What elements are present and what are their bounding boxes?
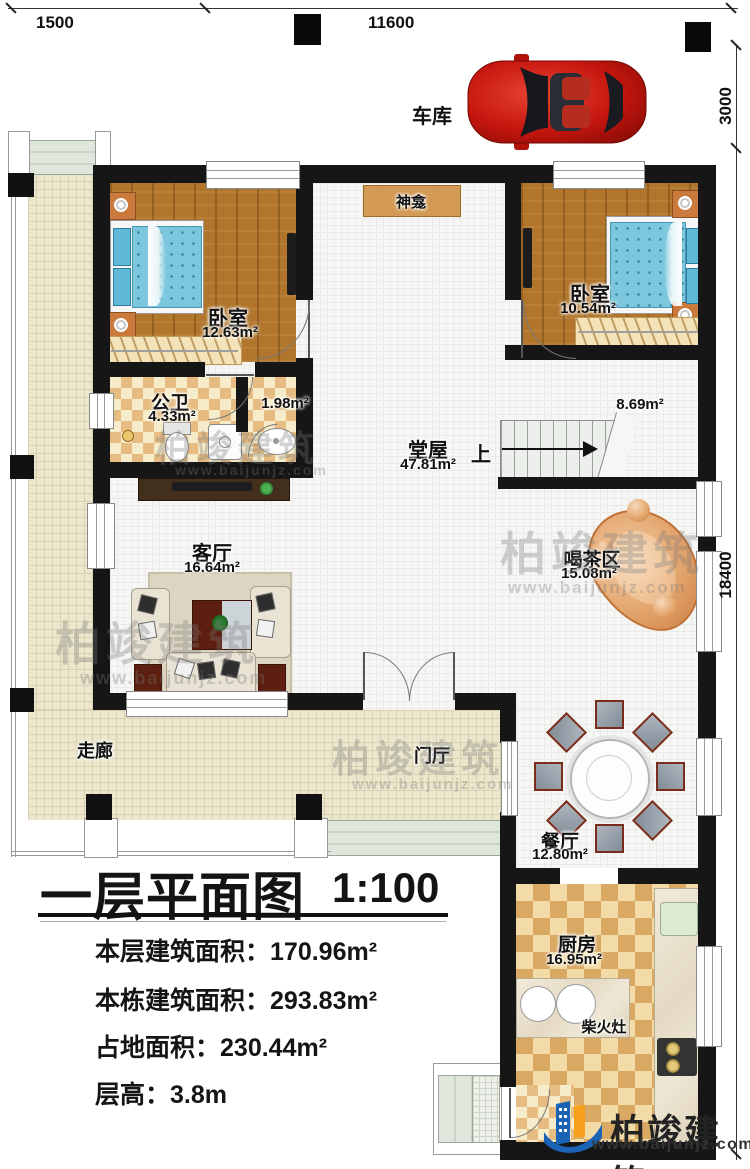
dining-chair <box>656 762 685 791</box>
stat-building-area: 本栋建筑面积：293.83m² <box>95 981 377 1017</box>
stat-floor-area: 本层建筑面积：170.96m² <box>95 932 377 968</box>
kitchen-sink-icon <box>660 902 698 936</box>
column-pedestal <box>294 818 328 858</box>
window <box>87 503 115 569</box>
wall <box>500 693 516 743</box>
floor-plan-canvas: 1500 11600 3000 18400 车库 <box>0 0 750 1169</box>
tv-bedroom-left <box>287 233 296 295</box>
wall <box>93 362 205 377</box>
dim-18400: 18400 <box>716 551 736 598</box>
bed-left-pillow <box>113 268 131 306</box>
railing-west <box>15 140 16 857</box>
dining-table-inner <box>586 755 632 801</box>
stat-label: 层高： <box>95 1081 170 1109</box>
shower-drain-icon <box>219 436 231 448</box>
toilet-icon <box>165 432 189 462</box>
bed-right-sheet <box>664 222 682 306</box>
window <box>696 738 722 816</box>
bedroom-left-area: 12.63m² <box>202 324 258 341</box>
brand-website: www.baijunjz.com <box>592 1136 750 1154</box>
wall <box>285 693 363 710</box>
railing-post <box>8 131 30 177</box>
entry-steps-south <box>320 820 514 856</box>
title-underline-thin <box>40 921 446 922</box>
plan-scale: 1:100 <box>332 864 439 912</box>
dim-3000: 3000 <box>716 87 736 125</box>
window <box>206 161 300 189</box>
column <box>8 173 34 197</box>
kitchen-area: 16.95m² <box>546 951 602 968</box>
door-leaf <box>206 374 254 376</box>
sofa-cushion <box>255 592 275 612</box>
tea-stool <box>653 595 677 619</box>
tv-living <box>172 482 252 491</box>
dim-1500: 1500 <box>36 13 74 33</box>
sofa-cushion <box>220 658 240 678</box>
stat-label: 本层建筑面积： <box>95 938 270 966</box>
dining-area: 12.80m² <box>532 846 588 863</box>
dim-marker <box>685 22 711 52</box>
tea-area-value: 15.08m² <box>561 565 617 582</box>
nightstand <box>672 190 700 218</box>
hall-area: 47.81m² <box>400 456 456 473</box>
foyer-label: 门厅 <box>414 742 450 768</box>
wall <box>643 165 716 183</box>
entry-steps-northwest <box>28 140 97 175</box>
cabinet-plant-icon <box>260 482 273 495</box>
stat-floor-height: 层高：3.8m <box>95 1075 227 1111</box>
wall <box>498 477 716 489</box>
side-table <box>134 664 162 692</box>
wall <box>93 462 313 478</box>
column <box>10 688 34 712</box>
window <box>501 741 518 816</box>
wall <box>505 345 716 360</box>
stat-label: 占地面积： <box>95 1034 220 1062</box>
bathroom-area: 4.33m² <box>148 408 196 425</box>
railing-west <box>11 140 12 857</box>
dim-line-top <box>8 8 738 9</box>
wood-stove-label: 柴火灶 <box>581 1016 626 1037</box>
stat-value: 170.96m² <box>270 938 377 966</box>
nightstand <box>108 192 136 220</box>
stat-value: 230.44m² <box>220 1034 327 1062</box>
tea-stool <box>627 499 650 522</box>
bed-left-pillow <box>113 228 131 266</box>
wall <box>93 165 206 183</box>
floor-drain-icon <box>122 430 134 442</box>
wall <box>505 183 521 300</box>
column <box>86 794 112 820</box>
corridor-label: 走廊 <box>77 737 113 763</box>
plan-title: 一层平面图 <box>40 855 305 930</box>
stat-value: 3.8m <box>170 1081 227 1109</box>
dim-11600: 11600 <box>368 13 414 33</box>
sofa-cushion <box>256 619 275 638</box>
railing-south <box>11 851 331 852</box>
column <box>296 794 322 820</box>
column <box>10 455 34 479</box>
wall <box>698 183 716 483</box>
side-table <box>258 664 286 692</box>
gas-burner-icon <box>666 1059 680 1073</box>
coffee-table-plant-icon <box>212 615 228 631</box>
wall <box>296 183 313 300</box>
wood-stove-burner-icon <box>520 986 556 1022</box>
window <box>696 946 722 1047</box>
wall <box>618 868 716 884</box>
bedroom-right-area: 10.54m² <box>560 300 616 317</box>
shrine-label: 神龛 <box>396 191 426 212</box>
wall <box>500 868 560 884</box>
bed-left-mattress <box>132 226 202 308</box>
gas-burner-icon <box>666 1042 680 1056</box>
window <box>89 393 114 429</box>
column-pedestal <box>84 818 118 858</box>
sofa-cushion <box>138 621 158 641</box>
bath-compartment-area: 1.98m² <box>261 395 309 412</box>
stat-footprint-area: 占地面积：230.44m² <box>95 1028 327 1064</box>
stat-value: 293.83m² <box>270 987 377 1015</box>
tv-bedroom-right <box>523 228 532 288</box>
wall <box>298 165 553 183</box>
back-steps-tile <box>472 1075 500 1143</box>
window <box>553 161 645 189</box>
dim-line-right <box>736 45 737 1160</box>
stairs-arrow-icon <box>583 441 598 457</box>
wall <box>698 648 716 740</box>
wall <box>500 884 516 1087</box>
wall <box>93 565 110 710</box>
stair-landing-area: 8.69m² <box>616 396 664 413</box>
garage-label: 车库 <box>412 100 452 129</box>
stairs-direction-line <box>502 448 584 450</box>
stairs-up-label: 上 <box>471 438 491 467</box>
dining-chair <box>534 762 563 791</box>
window <box>126 691 288 717</box>
stat-label: 本栋建筑面积： <box>95 987 270 1015</box>
car-icon <box>462 52 652 152</box>
sofa-cushion <box>197 661 216 680</box>
dining-chair <box>595 700 624 729</box>
title-underline <box>38 913 448 917</box>
living-area: 16.64m² <box>184 559 240 576</box>
dim-marker <box>294 14 321 45</box>
wall <box>500 812 516 868</box>
window <box>696 481 722 537</box>
back-steps <box>438 1075 474 1143</box>
wardrobe-right <box>575 317 701 347</box>
dining-chair <box>595 824 624 853</box>
